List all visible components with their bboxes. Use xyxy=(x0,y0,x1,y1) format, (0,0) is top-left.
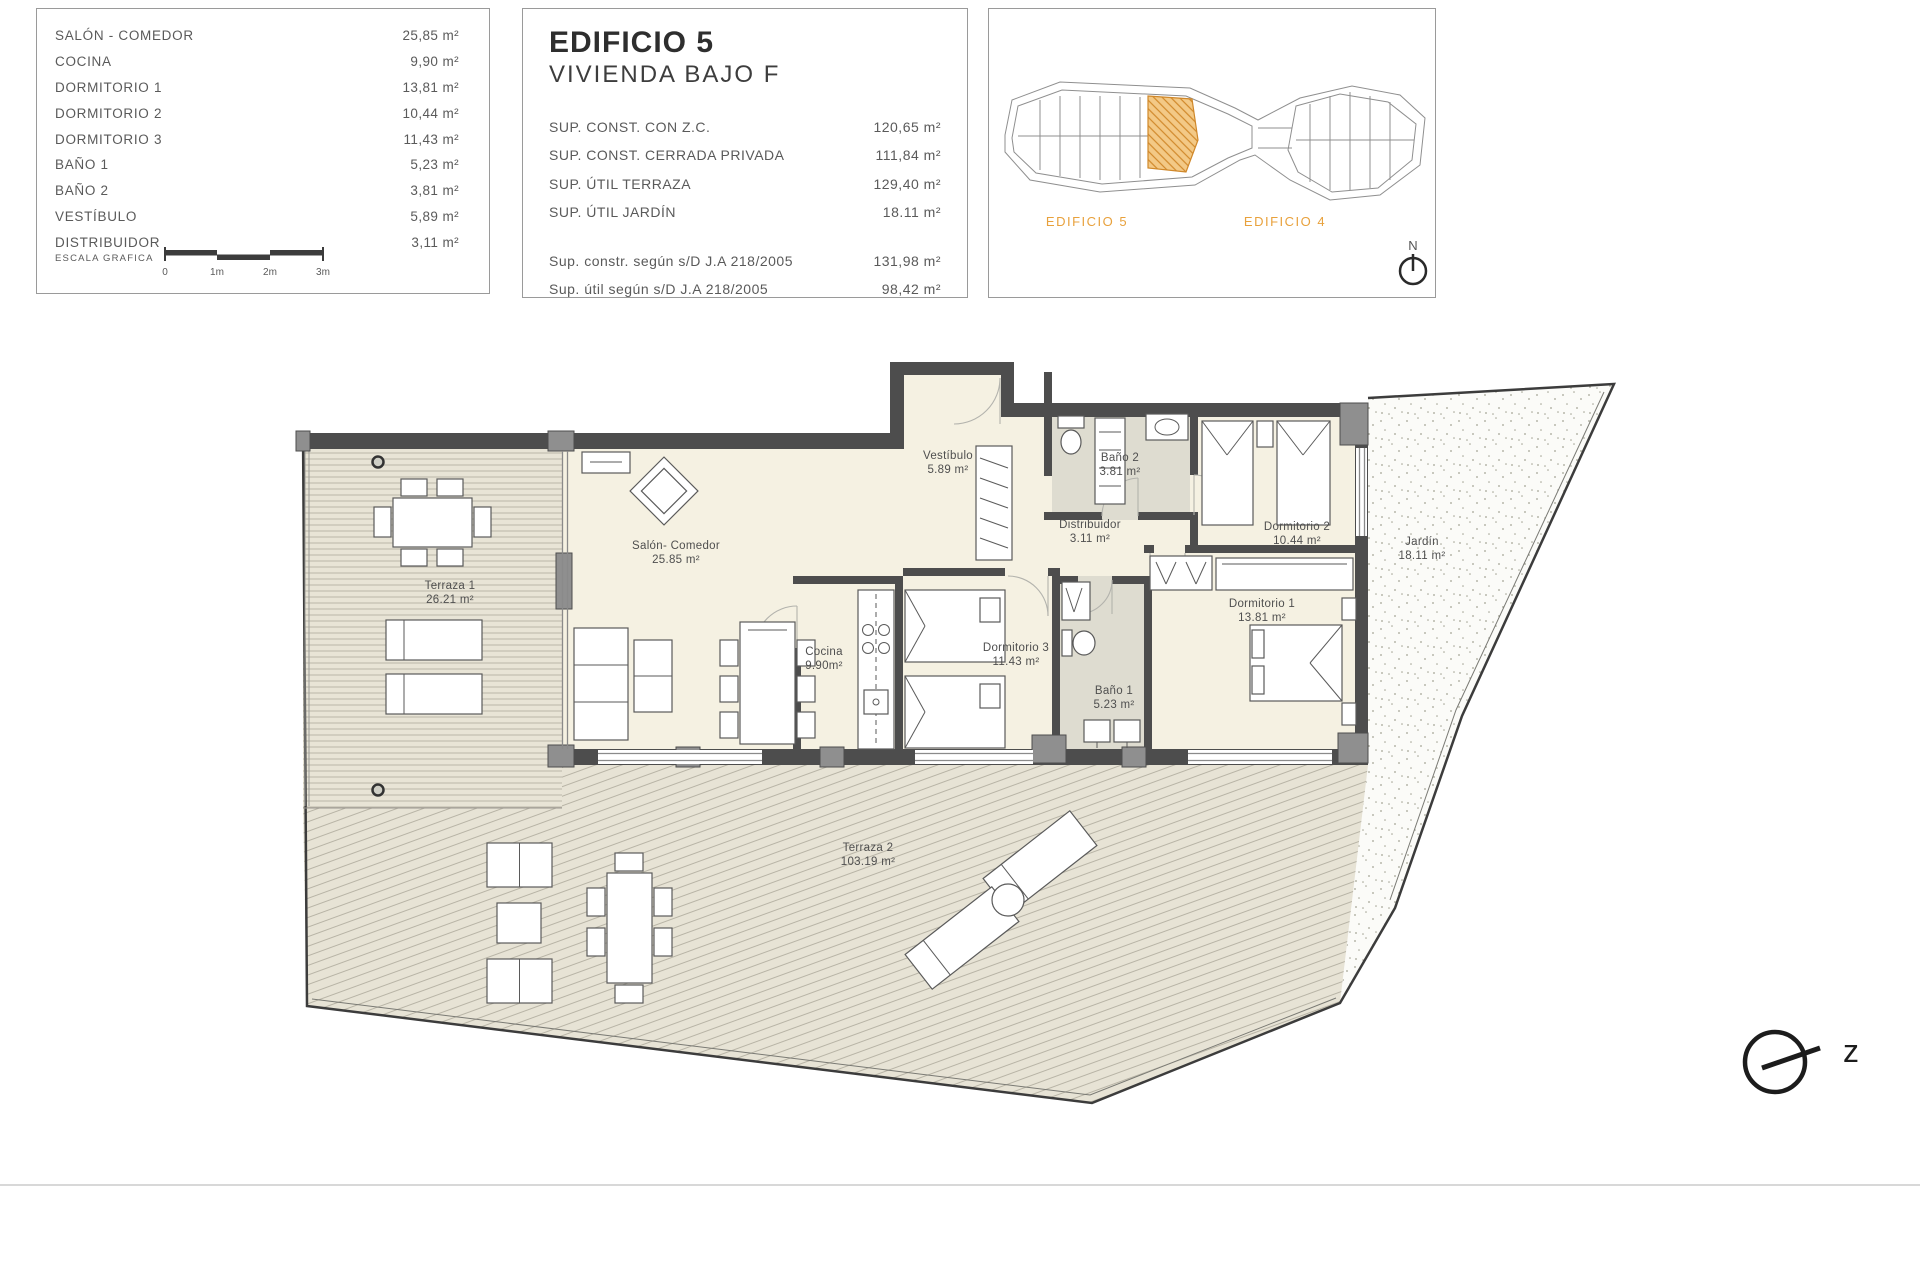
edificio5-label: EDIFICIO 5 xyxy=(1046,214,1128,229)
label-salon: Salón- Comedor xyxy=(632,540,720,552)
jardin-area xyxy=(1340,384,1614,1003)
cocina-fittings xyxy=(858,590,894,749)
label-jardin: Jardín xyxy=(1405,536,1439,548)
edificio4-label: EDIFICIO 4 xyxy=(1244,214,1326,229)
area-bano1: 5.23 m² xyxy=(1093,699,1134,711)
area-bano2: 3.81 m² xyxy=(1099,466,1140,478)
label-vestibulo: Vestíbulo xyxy=(923,450,973,462)
north-icon: N xyxy=(1400,238,1426,284)
vestibulo-closet xyxy=(976,446,1012,560)
orientation-compass-icon: z xyxy=(1745,1032,1859,1092)
label-cocina: Cocina xyxy=(805,646,843,658)
floorplan-sheet: SALÓN - COMEDOR25,85 m² COCINA9,90 m² DO… xyxy=(0,0,1920,1280)
area-distribuidor: 3.11 m² xyxy=(1070,533,1110,545)
label-distribuidor: Distribuidor xyxy=(1059,519,1121,531)
area-terraza2: 103.19 m² xyxy=(841,856,895,868)
area-dorm3: 11.43 m² xyxy=(993,656,1040,668)
compass-letter: z xyxy=(1843,1033,1859,1069)
area-dorm2: 10.44 m² xyxy=(1273,535,1321,547)
label-bano2: Baño 2 xyxy=(1101,452,1139,464)
highlighted-unit xyxy=(1148,96,1198,172)
site-keyplan: EDIFICIO 5 EDIFICIO 4 N xyxy=(1005,82,1426,284)
area-terraza1: 26.21 m² xyxy=(426,594,474,606)
north-letter: N xyxy=(1408,238,1417,253)
label-dorm3: Dormitorio 3 xyxy=(983,642,1049,654)
terraza-2-deck xyxy=(303,765,1368,1103)
label-dorm2: Dormitorio 2 xyxy=(1264,521,1330,533)
label-terraza2: Terraza 2 xyxy=(843,842,894,854)
area-salon: 25.85 m² xyxy=(652,554,700,566)
floor-plan-drawing: Terraza 1 26.21 m² Salón- Comedor 25.85 … xyxy=(0,0,1920,1280)
label-terraza1: Terraza 1 xyxy=(425,580,476,592)
label-dorm1: Dormitorio 1 xyxy=(1229,598,1295,610)
area-cocina: 9.90m² xyxy=(805,660,843,672)
label-bano1: Baño 1 xyxy=(1095,685,1133,697)
area-jardin: 18.11 m² xyxy=(1399,550,1446,562)
area-dorm1: 13.81 m² xyxy=(1238,612,1286,624)
area-vestibulo: 5.89 m² xyxy=(927,464,968,476)
